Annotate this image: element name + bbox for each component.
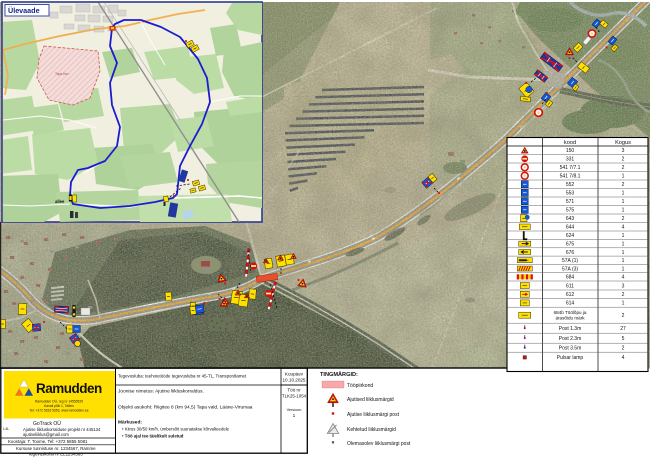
svg-text:• Töö ajal tee täielikult su: • Töö ajal tee täielikult suletud (122, 434, 184, 439)
svg-text:4: 4 (622, 275, 625, 281)
svg-text:kood: kood (564, 140, 576, 146)
svg-text:541 7/8.1: 541 7/8.1 (560, 174, 581, 180)
svg-text:Post 2.3m: Post 2.3m (559, 336, 582, 342)
svg-text:Post 1.3m: Post 1.3m (559, 326, 582, 332)
svg-text:541 7/7.1: 541 7/7.1 (560, 165, 581, 171)
svg-text:331: 331 (566, 157, 575, 163)
svg-text:1: 1 (622, 258, 625, 264)
svg-text:3: 3 (622, 283, 625, 289)
svg-text:611: 611 (566, 283, 574, 289)
svg-text:1: 1 (622, 174, 625, 180)
svg-text:Post 3.5m: Post 3.5m (559, 346, 582, 352)
svg-text:Koostaja: T. Toome, Tel: +372: Koostaja: T. Toome, Tel: +372 5855 5081 (8, 439, 88, 444)
svg-text:Märkused:: Märkused: (118, 420, 142, 426)
svg-text:1: 1 (622, 301, 625, 307)
svg-text:TINGMÄRGID:: TINGMÄRGID: (320, 371, 358, 378)
svg-text:1: 1 (622, 191, 625, 197)
svg-text:684: 684 (566, 275, 575, 281)
svg-text:TLK25-1054: TLK25-1054 (282, 394, 307, 399)
svg-text:614: 614 (566, 301, 575, 307)
svg-text:644: 644 (566, 225, 575, 231)
svg-text:1: 1 (622, 233, 625, 239)
svg-text:553: 553 (566, 191, 575, 197)
svg-text:1: 1 (293, 413, 296, 419)
svg-text:150: 150 (566, 148, 575, 154)
svg-text:57A (1): 57A (1) (562, 258, 578, 264)
svg-text:1: 1 (622, 266, 625, 272)
svg-text:Kuupäev: Kuupäev (285, 372, 304, 377)
svg-text:Ülevaade: Ülevaade (8, 6, 40, 15)
svg-text:Tel: +372 5333 5353, www.ramud: Tel: +372 5333 5353, www.ramudden.ee (29, 409, 88, 413)
svg-text:27: 27 (620, 326, 626, 332)
svg-text:I-4L: I-4L (3, 427, 9, 431)
svg-text:ajutineliiklus@gmail.com: ajutineliiklus@gmail.com (23, 432, 69, 437)
svg-text:Ramudden OÜ, reg nr 14553529: Ramudden OÜ, reg nr 14553529 (35, 400, 83, 404)
svg-text:2: 2 (622, 292, 625, 298)
svg-text:4: 4 (622, 225, 625, 231)
svg-text:675: 675 (566, 241, 575, 247)
svg-text:2: 2 (622, 165, 625, 171)
svg-text:Kanali põik 1, Tallinn: Kanali põik 1, Tallinn (44, 404, 74, 408)
svg-text:575: 575 (566, 208, 575, 214)
svg-text:Kogus: Kogus (615, 140, 631, 146)
svg-text:643: 643 (566, 216, 575, 222)
svg-text:Tapa linn: Tapa linn (55, 72, 69, 76)
svg-text:2: 2 (622, 346, 625, 352)
svg-text:Objekti asukoht: Riigitee 8 (k: Objekti asukoht: Riigitee 8 (km 94,5) Ta… (118, 405, 253, 411)
svg-text:Tegevuskoha nr EL1234563: Tegevuskoha nr EL1234563 (28, 452, 83, 457)
svg-text:Olemasolev liiklusmärgi post: Olemasolev liiklusmärgi post (347, 441, 411, 447)
svg-text:3: 3 (622, 148, 625, 154)
svg-text:• Kiirus 30/50 km/h, ümbersõ: • Kiirus 30/50 km/h, ümbersõit suunataks… (122, 427, 230, 432)
svg-text:Töö nr: Töö nr (287, 388, 301, 393)
svg-text:Ajutise liiklusmärgi post: Ajutise liiklusmärgi post (347, 412, 400, 418)
svg-text:Ajutised liiklusmärgid: Ajutised liiklusmärgid (347, 397, 394, 403)
svg-text:2: 2 (622, 157, 625, 163)
svg-text:1: 1 (622, 208, 625, 214)
svg-text:Kehtetud liiklusmärgid: Kehtetud liiklusmärgid (347, 427, 396, 433)
svg-text:Kursuse tunnistuse nr. 1234567: Kursuse tunnistuse nr. 1234567, Ramme (16, 446, 96, 451)
svg-text:4: 4 (622, 355, 625, 361)
svg-text:1: 1 (622, 241, 625, 247)
svg-text:10.10.2025: 10.10.2025 (283, 378, 306, 383)
svg-text:57A (3): 57A (3) (562, 266, 578, 272)
svg-text:Tegevusluba: teehoiutööde tege: Tegevusluba: teehoiutööde tegevusluba nr… (118, 374, 247, 379)
svg-text:1: 1 (622, 250, 625, 256)
svg-text:ärasõidu märk: ärasõidu märk (555, 315, 585, 320)
svg-text:GoTrack OÜ: GoTrack OÜ (33, 420, 61, 427)
svg-text:552: 552 (566, 182, 575, 188)
svg-text:2: 2 (622, 216, 625, 222)
svg-text:Versioon: Versioon (287, 408, 302, 412)
svg-text:1: 1 (622, 199, 625, 205)
svg-text:2: 2 (622, 313, 625, 319)
svg-text:624: 624 (566, 233, 575, 239)
svg-text:676: 676 (566, 250, 575, 256)
svg-text:Joonise nimetus: Ajutine liikl: Joonise nimetus: Ajutine liikluskorraldu… (118, 389, 204, 395)
svg-text:Pulsar lamp: Pulsar lamp (557, 355, 584, 361)
svg-text:Tööpiirkond: Tööpiirkond (347, 383, 373, 389)
svg-text:612: 612 (566, 292, 575, 298)
svg-text:allee: allee (55, 199, 65, 204)
svg-text:5: 5 (622, 336, 625, 342)
svg-text:Ramudden: Ramudden (36, 381, 102, 396)
svg-text:2: 2 (622, 182, 625, 188)
svg-text:571: 571 (566, 199, 575, 205)
